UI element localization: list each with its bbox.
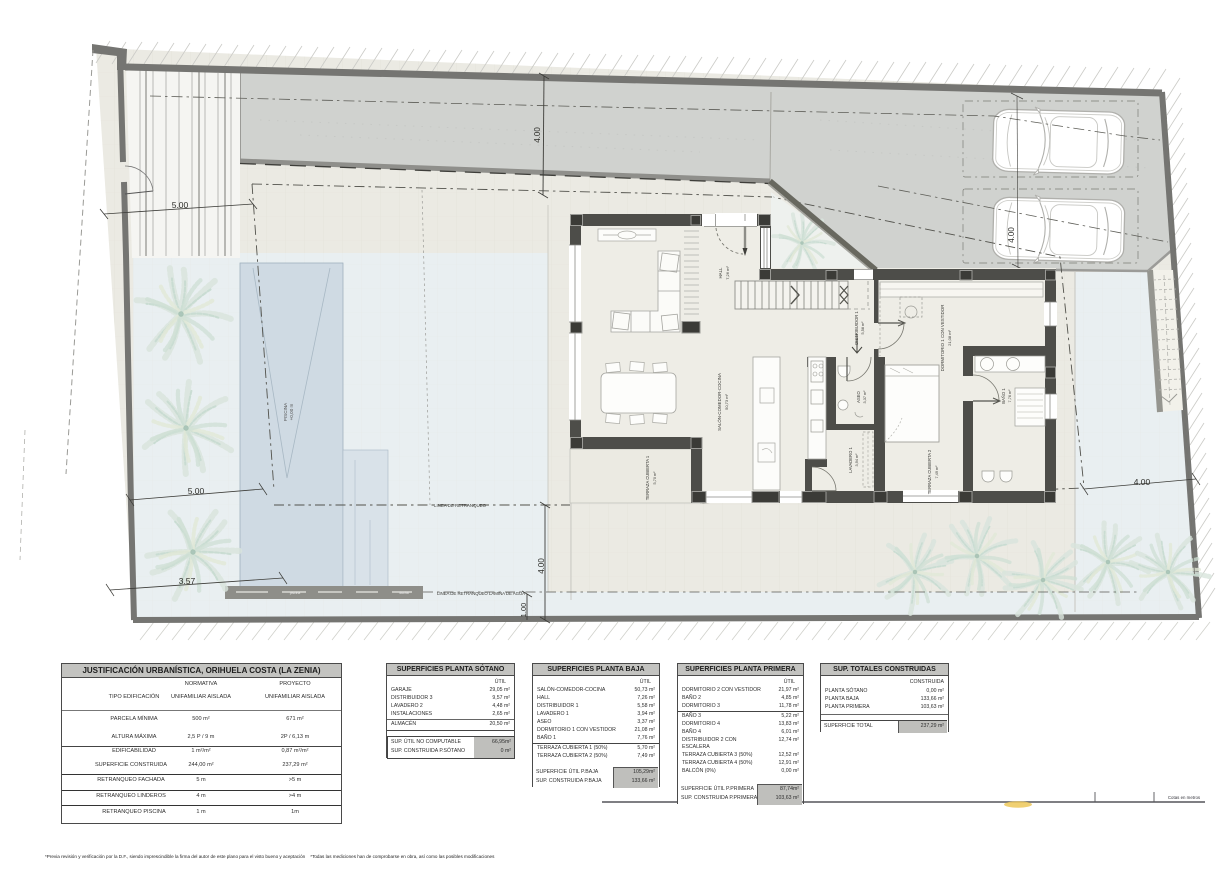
svg-text:ASEO: ASEO — [856, 390, 861, 402]
svg-text:7,49 m²: 7,49 m² — [935, 465, 939, 479]
svg-text:Cotas en metros: Cotas en metros — [1168, 795, 1201, 800]
svg-text:TERRAZA CUBIERTA 1: TERRAZA CUBIERTA 1 — [645, 455, 650, 500]
svg-text:4.00: 4.00 — [533, 127, 542, 143]
svg-text:5,58 m²: 5,58 m² — [861, 321, 865, 335]
svg-text:LAVADERO 1: LAVADERO 1 — [848, 446, 853, 472]
svg-text:50,73 m²: 50,73 m² — [724, 393, 729, 409]
svg-text:21,08 m²: 21,08 m² — [947, 329, 952, 345]
svg-text:7,26 m²: 7,26 m² — [725, 266, 730, 280]
svg-text:LINEA DE RETRANQUEO: LINEA DE RETRANQUEO — [434, 503, 487, 508]
svg-text:5.00: 5.00 — [172, 200, 189, 210]
svg-text:3,94 m²: 3,94 m² — [855, 453, 859, 467]
svg-text:BAÑO 1: BAÑO 1 — [1001, 388, 1006, 404]
svg-text:+0,00 m: +0,00 m — [289, 403, 294, 420]
svg-text:5.00: 5.00 — [188, 486, 205, 496]
svg-text:piscina: piscina — [290, 591, 301, 595]
svg-text:TERRAZA CUBIERTA 2: TERRAZA CUBIERTA 2 — [927, 449, 932, 494]
svg-text:SALÓN-COMEDOR-COCINA: SALÓN-COMEDOR-COCINA — [717, 373, 722, 431]
svg-text:4.00: 4.00 — [1134, 477, 1151, 487]
svg-text:7,76 m²: 7,76 m² — [1008, 389, 1012, 403]
svg-text:1.00: 1.00 — [519, 603, 528, 618]
svg-text:DORMITORIO 1 CON VESTIDOR: DORMITORIO 1 CON VESTIDOR — [940, 305, 945, 372]
svg-text:PISCINA: PISCINA — [283, 402, 288, 421]
svg-text:5,70 m²: 5,70 m² — [653, 471, 657, 485]
svg-text:4.00: 4.00 — [1007, 227, 1016, 243]
svg-text:3,37 m²: 3,37 m² — [863, 390, 867, 404]
svg-text:4.00: 4.00 — [537, 558, 546, 574]
svg-text:ducha: ducha — [399, 591, 408, 595]
svg-text:3.57: 3.57 — [179, 576, 196, 586]
svg-text:DISTRIBUIDOR 1: DISTRIBUIDOR 1 — [854, 311, 859, 345]
svg-text:HALL: HALL — [718, 267, 723, 279]
svg-text:LINEA DE RETRANQUEO LAMINA DE: LINEA DE RETRANQUEO LAMINA DE AGUA — [437, 591, 525, 596]
